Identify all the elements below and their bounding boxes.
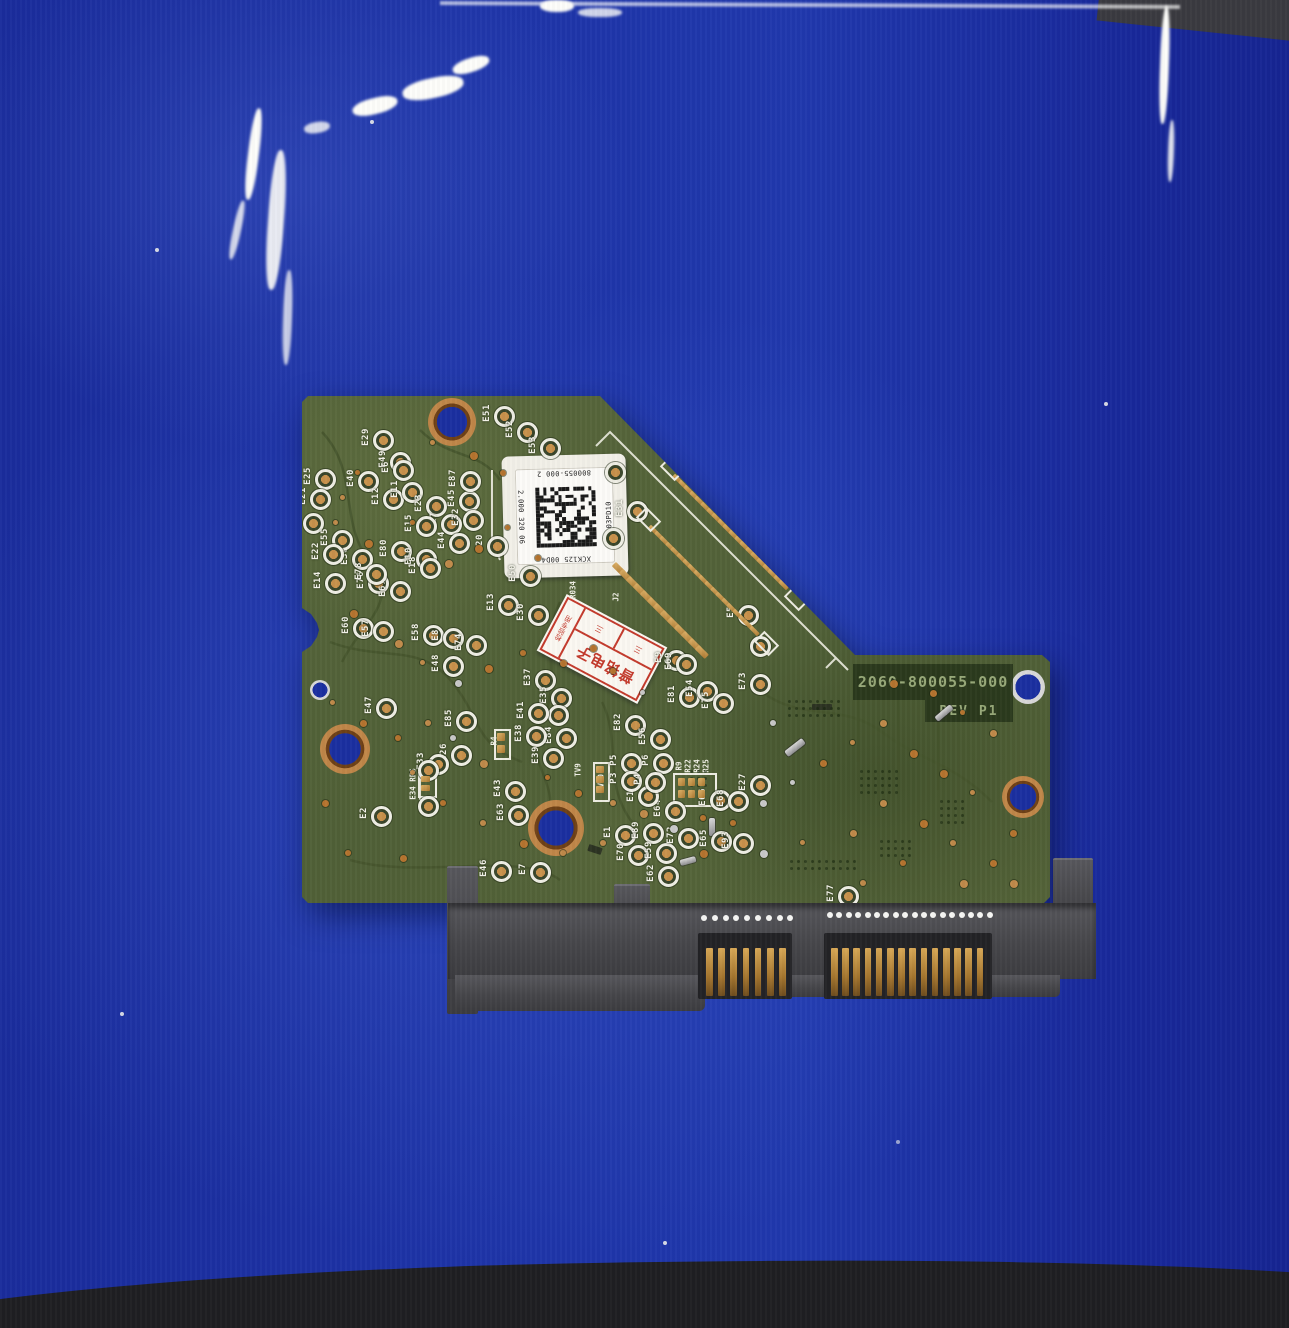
qc-sticker-grid: 普铭电子 三 三 检验专用 <box>539 597 664 702</box>
barcode-text-left: 2.000 320 06 <box>516 490 525 544</box>
test-point-label: E48 <box>431 654 441 672</box>
test-point-label: E11 <box>390 480 400 498</box>
via <box>760 800 767 807</box>
sata-power-pin <box>898 948 905 996</box>
pin-hole <box>865 912 871 918</box>
ghost-pad <box>825 867 828 870</box>
ghost-pad <box>846 860 849 863</box>
sata-power-pin <box>909 948 916 996</box>
via <box>355 470 360 475</box>
ghost-pad <box>797 867 800 870</box>
ghost-pad <box>830 700 833 703</box>
sata-power-pin <box>887 948 894 996</box>
datamatrix-barcode <box>535 486 597 548</box>
ghost-pad <box>832 867 835 870</box>
via <box>480 820 486 826</box>
connector-pad <box>779 580 790 591</box>
ghost-pad <box>940 821 943 824</box>
test-point-label: E87 <box>448 469 458 487</box>
test-point <box>456 711 477 732</box>
sata-data-pin <box>706 948 713 996</box>
test-point-label: E50 <box>508 564 518 582</box>
test-point <box>658 866 679 887</box>
ghost-pad <box>940 814 943 817</box>
test-point-label: E78 <box>354 562 364 580</box>
ghost-pad <box>839 867 842 870</box>
via <box>340 495 345 500</box>
test-point-label: E22 <box>311 542 321 560</box>
test-point <box>371 806 392 827</box>
ghost-pad <box>816 707 819 710</box>
connector-pad <box>749 625 760 636</box>
sata-power-pin <box>932 948 939 996</box>
sata-power-pin <box>921 948 928 996</box>
test-point-label: E56 <box>638 727 648 745</box>
ghost-pad <box>837 707 840 710</box>
test-point <box>645 772 666 793</box>
via <box>930 690 937 697</box>
qc-sticker: 普铭电子 三 三 检验专用 <box>537 594 668 704</box>
via <box>860 880 866 886</box>
test-point-label: E75 <box>701 691 711 709</box>
via <box>770 720 776 726</box>
test-point-label: E18 <box>408 556 418 574</box>
ghost-pad <box>704 770 707 773</box>
via <box>365 540 373 548</box>
ghost-pad <box>846 867 849 870</box>
test-point-label: E39 <box>531 746 541 764</box>
test-point <box>463 510 484 531</box>
test-point-label: E58 <box>411 623 421 641</box>
ghost-pad <box>901 840 904 843</box>
test-point <box>487 536 508 557</box>
test-point-label: E12 <box>371 487 381 505</box>
test-point <box>449 533 470 554</box>
ghost-pad <box>881 770 884 773</box>
ghost-pad <box>795 700 798 703</box>
test-point <box>416 516 437 537</box>
sata-power-pin <box>853 948 860 996</box>
ghost-pad <box>790 867 793 870</box>
test-point <box>325 573 346 594</box>
mounting-hole <box>1002 776 1044 818</box>
ghost-pad <box>947 821 950 824</box>
ghost-pad <box>837 700 840 703</box>
via <box>560 850 566 856</box>
test-point-label: E35 <box>539 686 549 704</box>
via <box>475 545 483 553</box>
via <box>560 660 567 667</box>
ghost-pad <box>837 714 840 717</box>
via <box>790 780 795 785</box>
via <box>425 720 431 726</box>
ghost-pad <box>961 800 964 803</box>
ghost-pad <box>795 707 798 710</box>
test-point <box>750 674 771 695</box>
test-point <box>650 729 671 750</box>
ghost-pad <box>940 800 943 803</box>
pin-hole <box>777 915 783 921</box>
pin-hole <box>701 915 707 921</box>
chip-component <box>587 844 602 855</box>
test-point <box>713 693 734 714</box>
part-number: 2060-800055-000 <box>858 673 1008 691</box>
sata-power-pin <box>977 948 984 996</box>
via <box>990 730 997 737</box>
pcb-board: 2060-800055-000 REV P1 800055-000 2 <box>0 0 1289 1328</box>
ghost-pad <box>901 847 904 850</box>
test-point-label: E69 <box>664 652 674 670</box>
via <box>480 760 488 768</box>
smd-pad <box>421 785 430 791</box>
sata-connector-lip-left <box>455 975 705 1011</box>
test-point <box>459 491 480 512</box>
ghost-pad <box>880 847 883 850</box>
sata-power-pin <box>831 948 838 996</box>
ghost-pad <box>880 854 883 857</box>
via <box>800 840 805 845</box>
test-point-label: E44 <box>437 531 447 549</box>
test-point-label: E62 <box>646 864 656 882</box>
ghost-pad <box>881 784 884 787</box>
ghost-pad <box>818 867 821 870</box>
test-point <box>750 775 771 796</box>
footprint-outline <box>660 456 685 481</box>
test-point-label: E8 <box>431 629 441 641</box>
ghost-pad <box>894 854 897 857</box>
test-point <box>323 544 344 565</box>
smd-pad <box>698 778 705 786</box>
test-point-label: E52 <box>505 420 515 438</box>
pin-hole <box>940 912 946 918</box>
test-point <box>373 621 394 642</box>
test-point-label: E55 <box>320 528 330 546</box>
ghost-pad <box>832 860 835 863</box>
via <box>640 690 645 695</box>
via <box>395 735 401 741</box>
pin-hole <box>968 912 974 918</box>
ghost-pad <box>802 714 805 717</box>
via <box>545 775 550 780</box>
barcode-text-top: 800055-000 2 <box>537 468 591 477</box>
test-point-label: E80 <box>379 539 389 557</box>
via <box>960 880 968 888</box>
via <box>900 860 906 866</box>
test-point <box>315 469 336 490</box>
via <box>910 750 918 758</box>
silkscreen-label: R9 <box>675 761 684 770</box>
ghost-pad <box>860 777 863 780</box>
via <box>333 520 338 525</box>
ghost-pad <box>895 777 898 780</box>
chip-component <box>812 704 832 710</box>
via <box>575 790 582 797</box>
via <box>420 660 425 665</box>
pin-hole <box>893 912 899 918</box>
ghost-pad <box>823 707 826 710</box>
test-point <box>443 656 464 677</box>
ghost-pad <box>954 807 957 810</box>
ghost-pad <box>809 707 812 710</box>
mounting-hole <box>528 800 584 856</box>
pin-hole <box>766 915 772 921</box>
ghost-pad <box>797 860 800 863</box>
test-point <box>393 460 414 481</box>
test-point-label: E21 <box>298 487 308 505</box>
smd-pad <box>596 786 604 793</box>
ghost-pad <box>895 770 898 773</box>
ghost-pad <box>823 700 826 703</box>
ghost-pad <box>788 707 791 710</box>
ghost-pad <box>874 770 877 773</box>
sata-data-pin <box>743 948 750 996</box>
ghost-pad <box>947 814 950 817</box>
sata-power-pin <box>842 948 849 996</box>
test-point-label: E53 <box>528 436 538 454</box>
ghost-pad <box>954 814 957 817</box>
via <box>850 740 855 745</box>
ghost-pad <box>830 714 833 717</box>
via <box>960 710 965 715</box>
test-point-label: P3 <box>609 772 619 784</box>
test-point-label: E25 <box>303 467 313 485</box>
ghost-pad <box>888 784 891 787</box>
via <box>505 525 510 530</box>
via <box>450 735 456 741</box>
ghost-pad <box>888 777 891 780</box>
test-point <box>530 862 551 883</box>
smd-pad <box>688 790 695 798</box>
test-point-label: E51 <box>482 404 492 422</box>
test-point <box>310 489 331 510</box>
footprint-outline <box>784 586 809 611</box>
ghost-pad <box>816 714 819 717</box>
test-point-label: E7 <box>518 863 528 875</box>
via <box>610 668 616 674</box>
test-point-label: E29 <box>361 428 371 446</box>
ghost-pad <box>839 860 842 863</box>
photo-canvas: 2060-800055-000 REV P1 800055-000 2 <box>0 0 1289 1328</box>
via <box>760 850 768 858</box>
via <box>500 470 506 476</box>
test-point <box>460 471 481 492</box>
ghost-pad <box>867 777 870 780</box>
ghost-pad <box>888 770 891 773</box>
pin-hole <box>755 915 761 921</box>
test-point <box>678 828 699 849</box>
test-point-label: E30 <box>516 603 526 621</box>
barcode-text-right: 03PD10 <box>605 501 614 528</box>
test-point <box>556 728 577 749</box>
via <box>345 850 351 856</box>
test-point-label: P6 <box>641 754 651 766</box>
ghost-pad <box>809 700 812 703</box>
via <box>445 560 453 568</box>
via <box>880 800 887 807</box>
via <box>455 680 462 687</box>
test-point <box>390 581 411 602</box>
silkscreen-label: J2 <box>612 592 621 601</box>
via <box>890 680 898 688</box>
test-point <box>605 462 626 483</box>
smd-pad <box>678 790 685 798</box>
via <box>590 645 597 652</box>
ghost-pad <box>823 714 826 717</box>
sata-power-pin <box>943 948 950 996</box>
pcb-board-wrap: 2060-800055-000 REV P1 800055-000 2 <box>0 0 1289 1328</box>
ghost-pad <box>853 867 856 870</box>
ghost-pad <box>809 714 812 717</box>
sata-data-pin <box>779 948 786 996</box>
sata-data-pin <box>767 948 774 996</box>
test-point-label: E65 <box>699 829 709 847</box>
test-point <box>603 528 624 549</box>
test-point <box>665 801 686 822</box>
silkscreen-label: TV9 <box>574 763 583 777</box>
via <box>880 720 887 727</box>
via <box>1010 830 1017 837</box>
test-point-label: E6 <box>381 461 391 473</box>
test-point <box>540 438 561 459</box>
ghost-pad <box>947 807 950 810</box>
ghost-pad <box>860 770 863 773</box>
test-point-label: E73 <box>738 672 748 690</box>
test-point-label: E9 <box>654 651 664 663</box>
ghost-pad <box>874 777 877 780</box>
ghost-pad <box>887 840 890 843</box>
ghost-pad <box>697 770 700 773</box>
via <box>520 840 528 848</box>
ghost-pad <box>880 840 883 843</box>
test-point-label: E37 <box>523 668 533 686</box>
ghost-pad <box>888 791 891 794</box>
test-point-label: E2 <box>359 807 369 819</box>
smd-pad <box>698 790 705 798</box>
test-point <box>656 843 677 864</box>
via <box>700 815 706 821</box>
ghost-pad <box>853 860 856 863</box>
test-point <box>373 430 394 451</box>
test-point-label: E85 <box>444 709 454 727</box>
ghost-pad <box>802 700 805 703</box>
ghost-pad <box>804 867 807 870</box>
ghost-pad <box>947 800 950 803</box>
test-point <box>528 703 549 724</box>
test-point-label: P4 <box>633 773 643 785</box>
ghost-pad <box>860 791 863 794</box>
via <box>485 665 493 673</box>
via <box>400 855 407 862</box>
ghost-pad <box>887 854 890 857</box>
test-point-label: E43 <box>493 779 503 797</box>
ghost-pad <box>825 860 828 863</box>
test-point-label: E31 <box>615 499 625 517</box>
via <box>940 770 948 778</box>
via <box>535 555 541 561</box>
ghost-pad <box>811 860 814 863</box>
ghost-pad <box>961 821 964 824</box>
test-point-label: E59 <box>644 841 654 859</box>
test-point-label: E14 <box>313 571 323 589</box>
via <box>395 640 403 648</box>
connector-pad <box>695 645 709 659</box>
test-point-label: E74 <box>454 633 464 651</box>
smd-pad <box>678 778 685 786</box>
test-point <box>451 745 472 766</box>
pin-hole <box>723 915 729 921</box>
ghost-pad <box>811 867 814 870</box>
via <box>410 520 415 525</box>
ghost-pad <box>802 707 805 710</box>
test-point-label: E86 <box>291 511 301 529</box>
test-point <box>491 861 512 882</box>
sata-power-pin <box>876 948 883 996</box>
via <box>470 452 478 460</box>
ghost-pad <box>881 791 884 794</box>
ghost-pad <box>881 777 884 780</box>
ghost-pad <box>867 791 870 794</box>
ghost-pad <box>816 700 819 703</box>
silkscreen-label: R034 <box>569 581 578 599</box>
jumper-component <box>784 738 806 757</box>
ghost-pad <box>788 714 791 717</box>
test-point-label: E32 <box>451 508 461 526</box>
via <box>520 650 526 656</box>
smd-pad <box>596 776 604 783</box>
ghost-pad <box>895 784 898 787</box>
test-point-label: E93 <box>721 831 731 849</box>
mounting-hole <box>428 398 476 446</box>
ghost-pad <box>887 847 890 850</box>
ghost-pad <box>908 854 911 857</box>
test-point <box>520 566 541 587</box>
ghost-pad <box>940 807 943 810</box>
ghost-pad <box>954 800 957 803</box>
ghost-pad <box>908 847 911 850</box>
ghost-pad <box>874 784 877 787</box>
test-point <box>376 698 397 719</box>
test-point-label: E81 <box>667 685 677 703</box>
pin-hole <box>827 912 833 918</box>
jumper-component <box>679 856 696 866</box>
pin-hole <box>959 912 965 918</box>
smd-pad <box>497 733 505 741</box>
corner-hole <box>1011 670 1045 704</box>
via <box>700 850 708 858</box>
via <box>970 790 975 795</box>
test-point-label: E27 <box>738 773 748 791</box>
test-point <box>366 564 387 585</box>
test-point-label: E1 <box>603 826 613 838</box>
via <box>670 825 678 833</box>
test-point-label: E70 <box>616 843 626 861</box>
ghost-pad <box>830 707 833 710</box>
via <box>360 720 367 727</box>
ghost-pad <box>961 814 964 817</box>
sata-power-pin <box>865 948 872 996</box>
pin-hole <box>987 912 993 918</box>
via <box>430 440 435 445</box>
test-point-label: E23 <box>414 494 424 512</box>
ghost-pad <box>818 860 821 863</box>
ghost-pad <box>804 860 807 863</box>
ghost-pad <box>954 821 957 824</box>
test-point-label: E46 <box>479 859 489 877</box>
mounting-hole <box>320 724 370 774</box>
test-point <box>728 791 749 812</box>
pin-hole <box>846 912 852 918</box>
ghost-pad <box>790 860 793 863</box>
